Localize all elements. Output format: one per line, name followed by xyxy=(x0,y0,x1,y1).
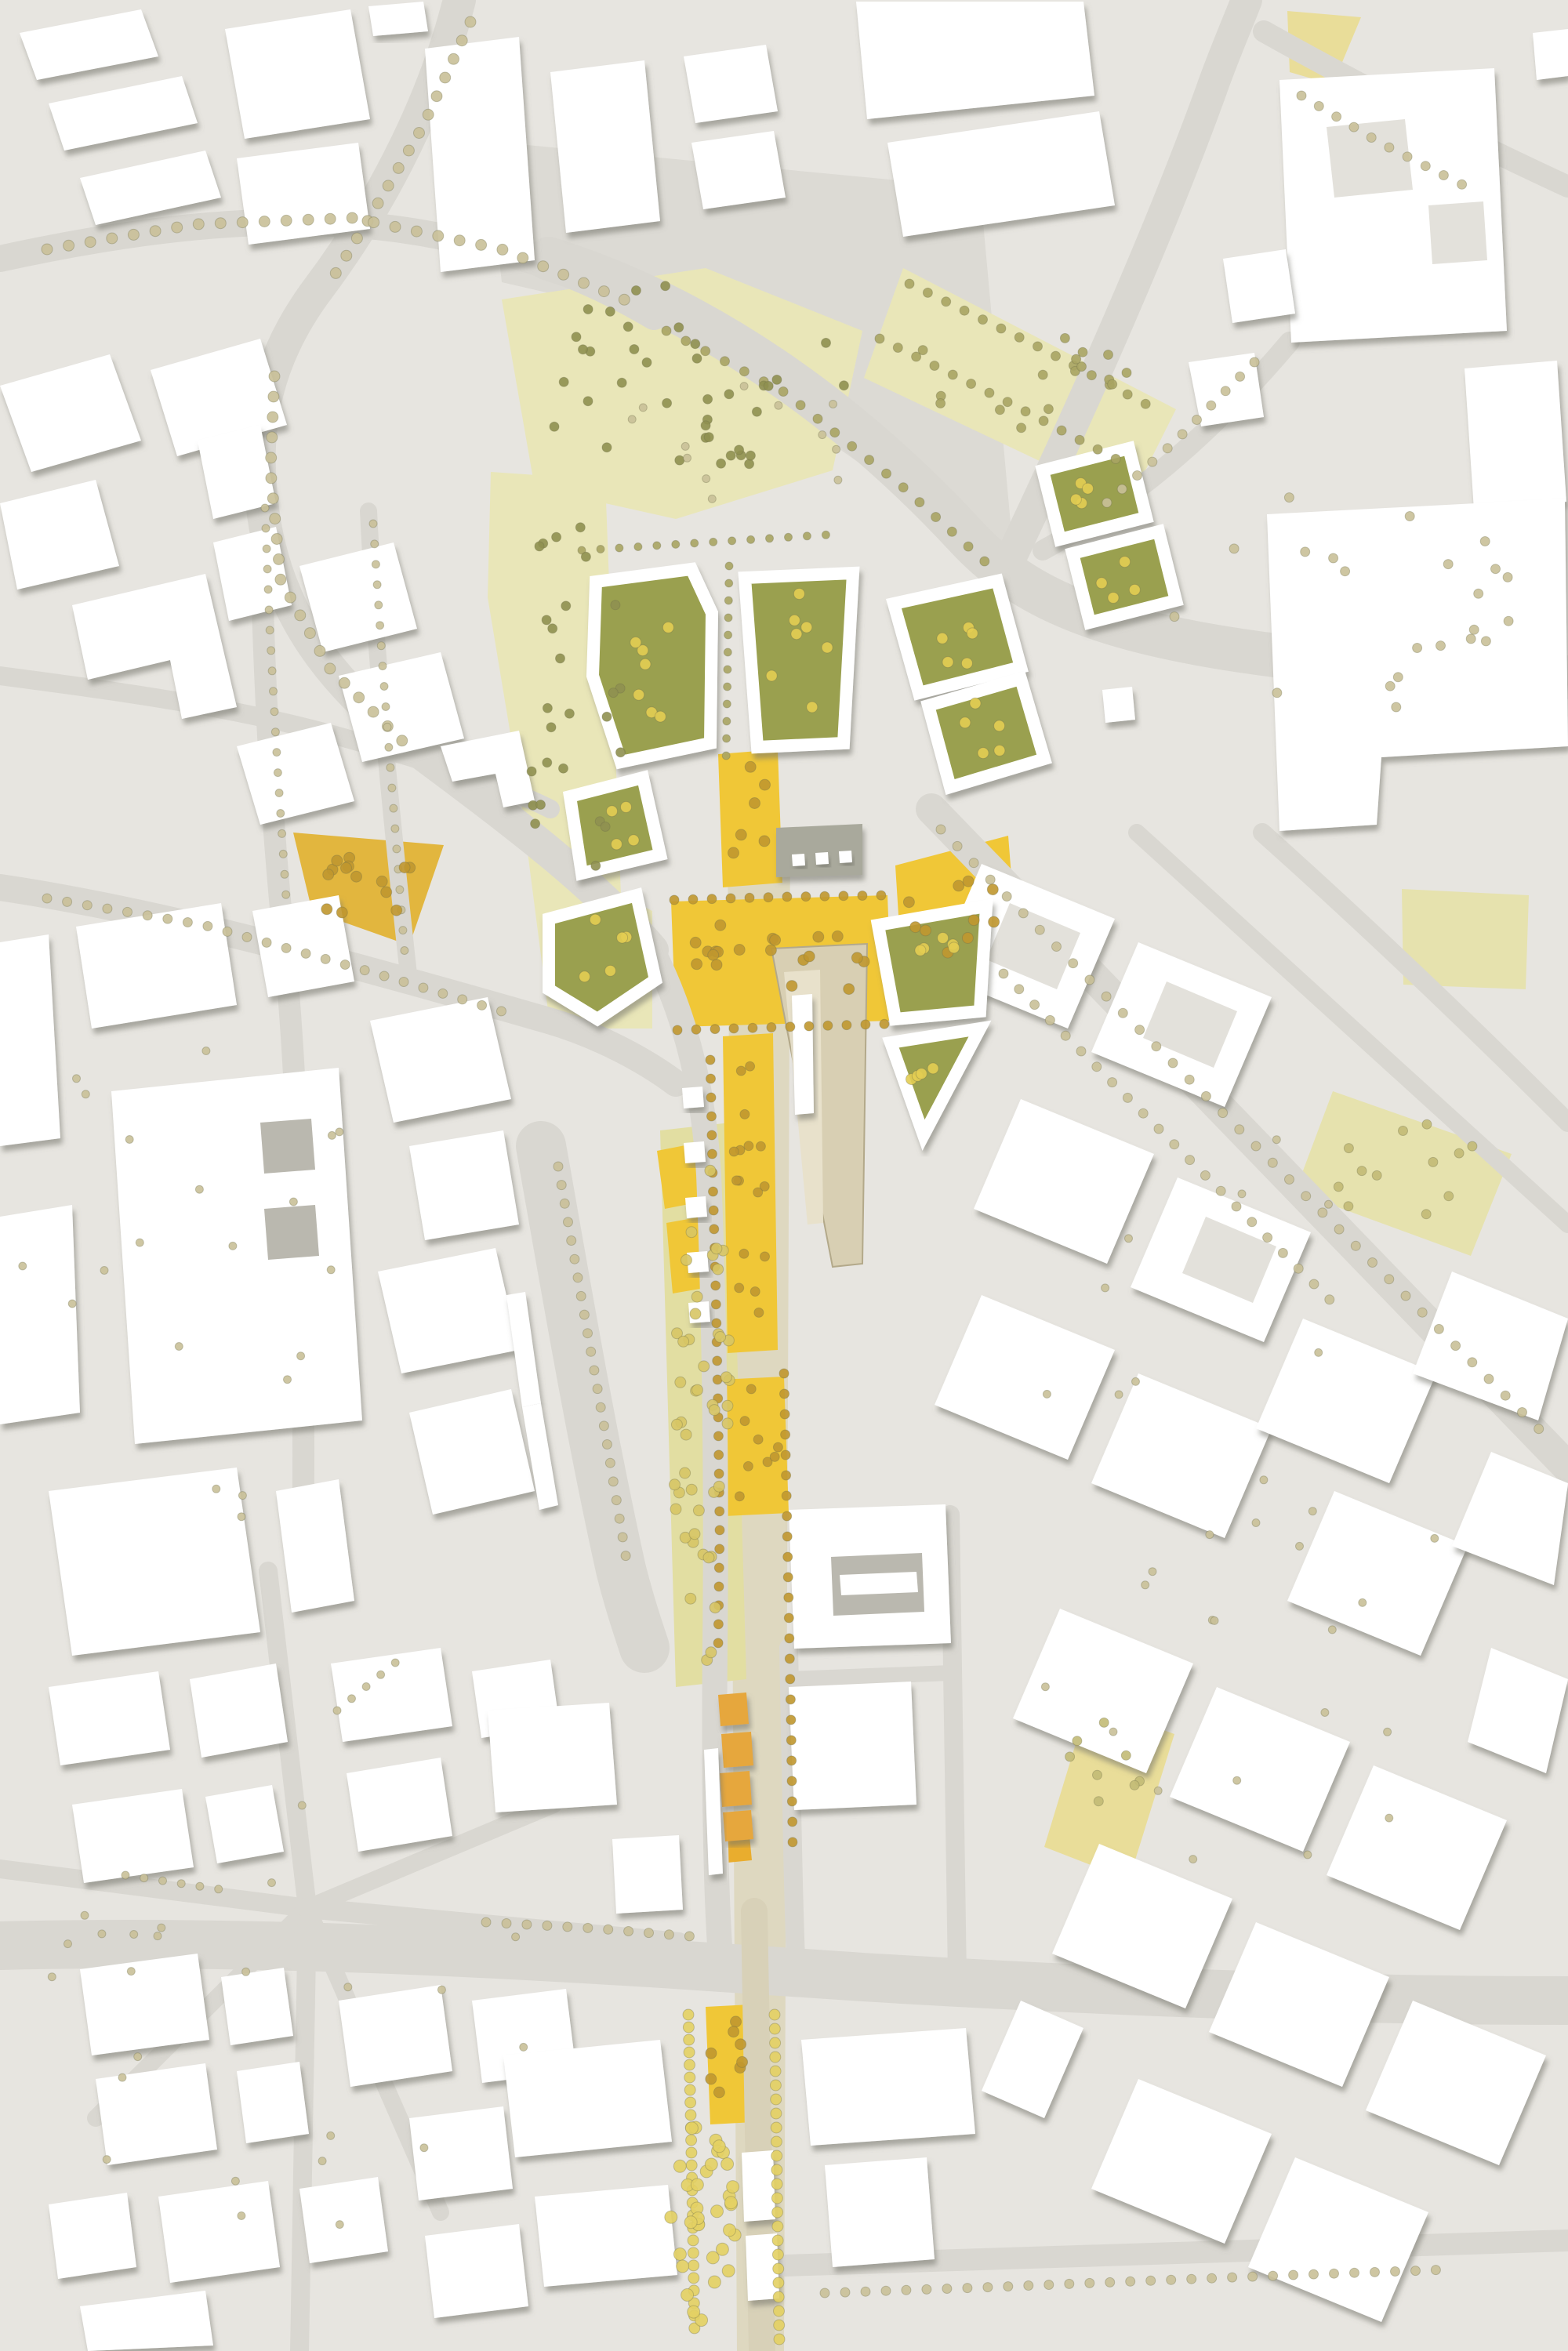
tree-icon xyxy=(281,943,291,952)
tree-icon xyxy=(807,702,818,713)
tree-icon xyxy=(583,305,593,314)
tree-icon xyxy=(662,398,672,408)
tree-icon xyxy=(454,235,465,246)
perimeter-block xyxy=(1043,448,1146,539)
tree-icon xyxy=(688,2248,699,2258)
tree-icon xyxy=(688,2260,699,2271)
tree-icon xyxy=(274,769,281,777)
tree-icon xyxy=(942,297,951,307)
tree-icon xyxy=(1102,1284,1109,1292)
tree-icon xyxy=(325,213,336,224)
tree-icon xyxy=(497,244,508,255)
pavilion xyxy=(682,1087,704,1108)
tree-icon xyxy=(686,2147,697,2158)
tree-icon xyxy=(1392,702,1401,712)
tree-icon xyxy=(784,1613,793,1623)
tree-icon xyxy=(735,2039,746,2050)
tree-icon xyxy=(684,2059,695,2070)
tree-icon xyxy=(423,109,434,120)
tree-icon xyxy=(715,1526,724,1535)
tree-icon xyxy=(1148,457,1157,466)
road xyxy=(790,1673,950,1679)
tree-icon xyxy=(1003,397,1012,407)
tree-icon xyxy=(1484,1374,1494,1384)
tree-icon xyxy=(706,1074,716,1083)
tree-icon xyxy=(725,579,733,587)
tree-icon xyxy=(593,1384,602,1394)
building xyxy=(0,1205,80,1424)
building xyxy=(801,2028,975,2146)
tree-icon xyxy=(628,835,639,846)
tree-icon xyxy=(1185,1075,1194,1084)
tree-icon xyxy=(785,1654,794,1663)
tree-icon xyxy=(1359,1598,1367,1606)
tree-icon xyxy=(783,1573,793,1582)
tree-icon xyxy=(42,244,53,255)
tree-icon xyxy=(735,1283,744,1293)
tree-icon xyxy=(1325,1295,1334,1304)
tree-icon xyxy=(963,2284,972,2293)
tree-icon xyxy=(579,345,588,354)
tree-icon xyxy=(729,1147,739,1156)
tree-icon xyxy=(261,504,269,512)
tree-icon xyxy=(999,969,1008,978)
tree-icon xyxy=(150,226,161,237)
tree-icon xyxy=(1385,681,1395,691)
building xyxy=(49,2193,136,2279)
tree-icon xyxy=(1399,1127,1408,1136)
tree-icon xyxy=(710,1602,720,1613)
tree-icon xyxy=(686,2135,697,2146)
tree-icon xyxy=(630,637,641,648)
tree-icon xyxy=(655,711,666,722)
tree-icon xyxy=(681,1254,692,1265)
tree-icon xyxy=(710,1025,720,1034)
tree-icon xyxy=(573,1273,583,1283)
tree-icon xyxy=(770,2080,781,2091)
tree-icon xyxy=(746,1061,755,1071)
tree-icon xyxy=(1401,1291,1410,1301)
tree-icon xyxy=(711,1243,722,1254)
tree-icon xyxy=(767,1023,776,1032)
tree-icon xyxy=(1405,512,1414,521)
tree-icon xyxy=(923,288,932,297)
tree-icon xyxy=(1187,2274,1196,2284)
tree-icon xyxy=(550,422,559,431)
tree-icon xyxy=(881,2286,891,2295)
tree-icon xyxy=(683,2022,694,2033)
tree-icon xyxy=(1235,1125,1244,1134)
tree-icon xyxy=(64,240,74,251)
perimeter-block xyxy=(570,778,660,873)
tree-icon xyxy=(691,1025,701,1034)
tree-icon xyxy=(456,35,467,46)
tree-icon xyxy=(772,2221,783,2232)
tree-icon xyxy=(1503,572,1512,582)
tree-icon xyxy=(822,338,831,347)
tree-icon xyxy=(714,1450,724,1460)
tree-icon xyxy=(583,1923,593,1932)
tree-icon xyxy=(351,871,362,882)
tree-icon xyxy=(706,1093,716,1102)
tree-icon xyxy=(772,2207,783,2218)
tree-icon xyxy=(268,1879,276,1887)
tree-icon xyxy=(1070,494,1081,505)
tree-icon xyxy=(564,1217,573,1227)
tree-icon xyxy=(936,399,946,408)
tree-icon xyxy=(685,1593,696,1604)
tree-icon xyxy=(1004,2282,1013,2291)
tree-icon xyxy=(1368,1258,1377,1268)
tree-icon xyxy=(1391,2267,1400,2277)
tree-icon xyxy=(840,2288,850,2297)
tree-icon xyxy=(1248,2272,1258,2281)
tree-icon xyxy=(605,965,616,976)
tree-icon xyxy=(301,949,310,958)
tree-icon xyxy=(1108,379,1117,389)
tree-icon xyxy=(753,1435,763,1444)
tree-icon xyxy=(1052,942,1062,952)
tree-icon xyxy=(382,703,390,711)
tree-icon xyxy=(1154,1787,1162,1794)
building xyxy=(789,1682,916,1810)
site-plan xyxy=(0,0,1568,2351)
tree-icon xyxy=(769,2023,780,2034)
tree-icon xyxy=(787,1756,797,1765)
tree-icon xyxy=(710,1224,719,1234)
tree-icon xyxy=(803,532,811,540)
tree-icon xyxy=(231,2177,239,2185)
tree-icon xyxy=(724,2224,736,2237)
tree-icon xyxy=(964,542,973,551)
tree-icon xyxy=(771,2193,782,2204)
tree-icon xyxy=(1260,1476,1268,1484)
tree-icon xyxy=(711,1300,720,1309)
tree-icon xyxy=(770,934,781,945)
tree-icon xyxy=(773,2277,784,2288)
tree-icon xyxy=(779,387,788,397)
tree-icon xyxy=(1108,1078,1117,1087)
tree-icon xyxy=(769,2009,780,2020)
tree-icon xyxy=(579,971,590,982)
tree-icon xyxy=(159,1877,167,1885)
tree-icon xyxy=(1126,2277,1135,2286)
tree-icon xyxy=(726,451,735,460)
tree-icon xyxy=(1385,143,1394,152)
tree-icon xyxy=(684,2034,695,2045)
tree-icon xyxy=(1434,1324,1443,1333)
tree-icon xyxy=(969,858,978,868)
building xyxy=(49,1468,260,1656)
tree-icon xyxy=(712,1319,721,1328)
tree-icon xyxy=(615,544,623,552)
tree-icon xyxy=(1118,1008,1127,1018)
tree-icon xyxy=(608,1477,618,1486)
tree-icon xyxy=(893,343,902,353)
tree-icon xyxy=(339,677,350,688)
tree-icon xyxy=(787,1776,797,1786)
tree-icon xyxy=(704,433,713,442)
tree-icon xyxy=(438,989,448,998)
tree-icon xyxy=(590,1366,599,1375)
tree-icon xyxy=(732,1176,742,1185)
tree-icon xyxy=(602,1440,612,1449)
tree-icon xyxy=(681,336,691,346)
perimeter-block xyxy=(1073,532,1176,622)
tree-icon xyxy=(399,927,407,934)
tree-icon xyxy=(793,589,804,600)
building xyxy=(684,45,778,123)
tree-icon xyxy=(801,892,811,902)
orange-building xyxy=(720,1771,752,1807)
tree-icon xyxy=(675,1377,686,1388)
tree-icon xyxy=(391,825,399,833)
tree-icon xyxy=(1178,430,1187,439)
tree-icon xyxy=(1033,342,1043,351)
tree-icon xyxy=(770,2052,781,2063)
tree-icon xyxy=(546,723,556,732)
tree-icon xyxy=(1332,112,1341,122)
tree-icon xyxy=(759,836,770,847)
tree-icon xyxy=(630,345,639,354)
tree-icon xyxy=(564,709,574,718)
orange-building xyxy=(723,1810,753,1841)
tree-icon xyxy=(708,495,716,502)
tree-icon xyxy=(362,1683,370,1691)
tree-icon xyxy=(782,1471,791,1480)
tree-icon xyxy=(662,326,671,336)
tree-icon xyxy=(1269,2271,1278,2280)
tree-icon xyxy=(750,798,760,809)
tree-icon xyxy=(522,1920,532,1929)
tree-icon xyxy=(560,1199,569,1208)
tree-icon xyxy=(1443,560,1453,569)
tree-icon xyxy=(561,601,571,611)
tree-icon xyxy=(567,1236,576,1246)
tree-icon xyxy=(744,1141,753,1151)
tree-icon xyxy=(403,145,414,156)
tree-icon xyxy=(559,764,568,773)
tree-icon xyxy=(1314,101,1323,111)
tree-icon xyxy=(520,2043,528,2051)
tree-icon xyxy=(270,513,281,524)
tree-icon xyxy=(690,1308,701,1319)
tree-icon xyxy=(713,1638,723,1648)
building-courtyard xyxy=(264,1205,319,1260)
tree-icon xyxy=(1469,625,1479,634)
tree-icon xyxy=(262,938,271,947)
tree-icon xyxy=(1221,386,1230,396)
tree-icon xyxy=(605,1458,615,1468)
tree-icon xyxy=(265,606,273,614)
tree-icon xyxy=(607,806,618,817)
tree-icon xyxy=(785,533,793,541)
tree-icon xyxy=(681,442,689,450)
tree-icon xyxy=(295,610,306,621)
tree-icon xyxy=(393,162,404,173)
tree-icon xyxy=(262,524,270,532)
perimeter-block xyxy=(593,569,712,762)
tree-icon xyxy=(82,901,92,910)
tree-icon xyxy=(927,1063,938,1074)
tree-icon xyxy=(1168,1058,1178,1068)
tree-icon xyxy=(538,261,549,272)
tree-icon xyxy=(743,1461,753,1471)
building xyxy=(158,2181,280,2283)
tree-icon xyxy=(642,357,652,367)
tree-icon xyxy=(681,1429,691,1440)
tree-icon xyxy=(223,927,232,936)
tree-icon xyxy=(497,1007,506,1016)
tree-icon xyxy=(281,215,292,226)
tree-icon xyxy=(773,1442,782,1452)
tree-icon xyxy=(332,855,343,866)
tree-icon xyxy=(266,473,277,484)
tree-icon xyxy=(1135,1025,1145,1035)
tree-icon xyxy=(739,1249,749,1258)
tree-icon xyxy=(1111,454,1120,463)
tree-icon xyxy=(634,543,642,551)
tree-icon xyxy=(1263,1233,1272,1243)
tree-icon xyxy=(1192,415,1202,425)
tree-icon xyxy=(664,1930,673,1939)
tree-icon xyxy=(1233,1776,1241,1784)
tree-icon xyxy=(1123,1093,1132,1102)
tree-icon xyxy=(1167,2275,1176,2284)
tree-icon xyxy=(238,2212,245,2220)
tree-icon xyxy=(557,1181,566,1190)
tree-icon xyxy=(722,752,730,760)
tree-icon xyxy=(782,1532,792,1541)
tree-icon xyxy=(1289,2270,1298,2280)
tree-icon xyxy=(1329,553,1338,563)
building-courtyard xyxy=(1428,201,1487,264)
tree-icon xyxy=(720,1372,731,1383)
tree-icon xyxy=(381,887,392,898)
tree-icon xyxy=(686,1227,697,1238)
tree-icon xyxy=(910,922,921,933)
tree-icon xyxy=(619,294,630,305)
tree-icon xyxy=(1108,593,1119,604)
tree-icon xyxy=(527,767,536,776)
tree-icon xyxy=(920,925,931,936)
tree-icon xyxy=(327,1266,335,1274)
tree-icon xyxy=(183,918,192,927)
tree-icon xyxy=(942,657,953,668)
tree-icon xyxy=(1002,892,1011,902)
tree-icon xyxy=(1251,1141,1261,1151)
tree-icon xyxy=(861,2287,870,2296)
tree-icon xyxy=(303,214,314,225)
tree-icon xyxy=(728,847,739,858)
tree-icon xyxy=(281,870,289,878)
tree-icon xyxy=(275,574,286,585)
tree-icon xyxy=(875,334,884,343)
tree-icon xyxy=(789,615,800,626)
tree-icon xyxy=(237,217,248,228)
tree-icon xyxy=(673,2160,686,2172)
tree-icon xyxy=(542,615,551,625)
tree-icon xyxy=(278,829,286,837)
tree-icon xyxy=(693,1505,704,1516)
tree-icon xyxy=(766,670,777,681)
tree-icon xyxy=(786,1022,795,1032)
tree-icon xyxy=(746,451,755,460)
tree-icon xyxy=(750,1287,760,1297)
tree-icon xyxy=(127,1968,135,1975)
tree-icon xyxy=(64,1940,72,1948)
tree-icon xyxy=(736,1066,746,1076)
tree-icon xyxy=(1096,578,1107,589)
tree-icon xyxy=(724,648,731,656)
tree-icon xyxy=(1466,634,1475,644)
tree-icon xyxy=(685,2110,696,2121)
tree-icon xyxy=(1236,372,1245,381)
tree-icon xyxy=(1092,1062,1102,1072)
tree-icon xyxy=(713,2087,724,2098)
tree-icon xyxy=(1142,1581,1149,1589)
tree-icon xyxy=(692,1384,703,1395)
tree-icon xyxy=(833,445,840,453)
tree-icon xyxy=(930,361,939,371)
tree-icon xyxy=(726,894,735,903)
tree-icon xyxy=(771,2150,782,2161)
tree-icon xyxy=(163,914,172,923)
tree-icon xyxy=(745,459,754,469)
building xyxy=(1533,29,1568,80)
tree-icon xyxy=(380,683,388,691)
tree-icon xyxy=(548,624,557,633)
tree-icon xyxy=(918,346,927,355)
tree-icon xyxy=(586,1347,596,1356)
tree-icon xyxy=(559,377,568,386)
tree-icon xyxy=(684,2047,695,2058)
tree-icon xyxy=(360,966,369,975)
tree-icon xyxy=(570,1254,579,1264)
tree-icon xyxy=(745,893,754,902)
tree-icon xyxy=(229,1242,237,1250)
tree-icon xyxy=(784,1593,793,1602)
tree-icon xyxy=(633,689,644,700)
tree-icon xyxy=(1060,333,1069,343)
tree-icon xyxy=(710,538,717,546)
tree-icon xyxy=(590,914,601,925)
tree-icon xyxy=(788,1817,797,1827)
tree-icon xyxy=(1431,1534,1439,1542)
tree-icon xyxy=(691,959,702,970)
tree-icon xyxy=(707,894,717,904)
road xyxy=(950,1515,957,1977)
tree-icon xyxy=(709,1405,720,1416)
tree-icon xyxy=(344,1983,352,1991)
tree-icon xyxy=(688,2273,699,2284)
tree-icon xyxy=(1309,2269,1319,2279)
tree-icon xyxy=(543,758,552,767)
tree-icon xyxy=(780,1410,789,1419)
tree-icon xyxy=(512,1933,520,1941)
tree-icon xyxy=(82,1090,89,1098)
tree-icon xyxy=(1238,1190,1246,1198)
tree-icon xyxy=(686,1484,697,1495)
tree-icon xyxy=(271,534,282,545)
tree-icon xyxy=(665,2211,677,2223)
tree-icon xyxy=(953,880,964,891)
tree-icon xyxy=(1133,471,1142,481)
tree-icon xyxy=(931,513,941,522)
tree-icon xyxy=(804,1021,814,1031)
tree-icon xyxy=(1285,1175,1294,1185)
tree-icon xyxy=(949,942,960,953)
